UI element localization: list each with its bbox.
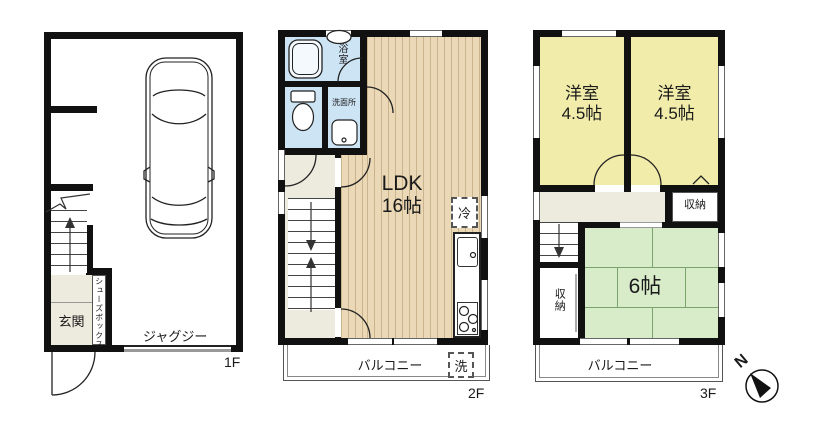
door-opening — [335, 158, 341, 187]
bathroom-label: 浴室 — [335, 43, 347, 79]
garage-door-opening — [124, 345, 231, 352]
stairs-3f — [540, 222, 578, 262]
door-opening — [595, 185, 624, 192]
ldk-name: LDK — [382, 171, 423, 196]
closet-door-line — [575, 274, 577, 332]
compass-icon — [746, 370, 778, 402]
door-opening — [631, 185, 660, 192]
wall-segment — [624, 37, 631, 192]
entrance-label: 玄関 — [51, 312, 92, 332]
window — [410, 30, 442, 37]
kitchen-sink — [457, 237, 478, 267]
tatami-line — [652, 307, 653, 338]
western-room-1-size: 4.5帖 — [562, 104, 603, 124]
jacuzzi-label: ジャグジー — [143, 329, 207, 345]
window — [481, 196, 488, 238]
western-room-2-size: 4.5帖 — [654, 104, 695, 124]
tatami-line — [652, 228, 653, 267]
toilet-room — [285, 87, 322, 148]
window — [481, 280, 488, 330]
sliding-door — [630, 338, 679, 345]
window — [718, 66, 725, 138]
refrigerator-box: 冷 — [451, 197, 478, 228]
floorplan-canvas: 玄関 シューズボックス ジャグジー 1F 浴室 洗面所 LDK 16帖 冷 バル… — [0, 0, 816, 437]
floor-2f-label: 2F — [468, 385, 484, 402]
window — [718, 283, 725, 317]
western-room-2-name: 洋室 — [658, 84, 692, 104]
window — [533, 192, 540, 220]
wall-segment — [360, 37, 367, 148]
wall-segment — [44, 184, 93, 191]
washer-label: 洗 — [454, 356, 467, 375]
closet-upper-label: 収納 — [672, 198, 718, 214]
wall-segment — [285, 148, 367, 155]
wall-segment — [578, 222, 585, 338]
western-room-2-label: 洋室 4.5帖 — [631, 78, 718, 130]
wall-segment — [665, 192, 672, 222]
washroom-label: 洗面所 — [328, 96, 360, 110]
western-room-1-name: 洋室 — [565, 84, 599, 104]
window — [326, 30, 351, 37]
compass-north-label: N — [731, 351, 752, 373]
bathroom — [285, 37, 360, 81]
entrance-door-arc — [52, 352, 95, 395]
window — [718, 233, 725, 267]
stove — [457, 302, 478, 335]
stairs-2f — [288, 198, 335, 310]
sliding-door — [394, 338, 437, 345]
wall-segment — [51, 106, 97, 113]
entrance-step-line — [51, 302, 92, 303]
sliding-door — [348, 338, 392, 345]
western-room-1-label: 洋室 4.5帖 — [540, 78, 624, 130]
tatami-room-label: 6帖 — [605, 272, 685, 302]
wall-segment — [86, 225, 93, 270]
floor-3f-label: 3F — [700, 385, 716, 402]
sliding-door — [580, 338, 627, 345]
entrance-room — [51, 275, 92, 345]
wall-segment — [540, 185, 718, 192]
balcony-2f-label: バルコニー — [340, 357, 440, 375]
ldk-label: LDK 16帖 — [363, 170, 441, 220]
closet-lower-label: 収納 — [552, 288, 565, 320]
wall-segment — [105, 273, 112, 345]
shoe-box-label: シューズボックス — [94, 277, 104, 345]
washer-box: 洗 — [448, 352, 474, 378]
floor-1f-label: 1F — [224, 354, 240, 371]
refrigerator-label: 冷 — [458, 203, 471, 222]
stairs-1f — [51, 210, 87, 273]
hallway-3f — [540, 192, 665, 222]
ldk-size: 16帖 — [382, 196, 422, 219]
balcony-3f-label: バルコニー — [565, 357, 675, 375]
window — [278, 192, 285, 214]
window — [562, 30, 616, 37]
window — [278, 150, 285, 180]
tatami-line — [685, 267, 686, 307]
window — [533, 66, 540, 138]
tatami-line — [585, 267, 718, 268]
door-opening — [335, 308, 341, 337]
